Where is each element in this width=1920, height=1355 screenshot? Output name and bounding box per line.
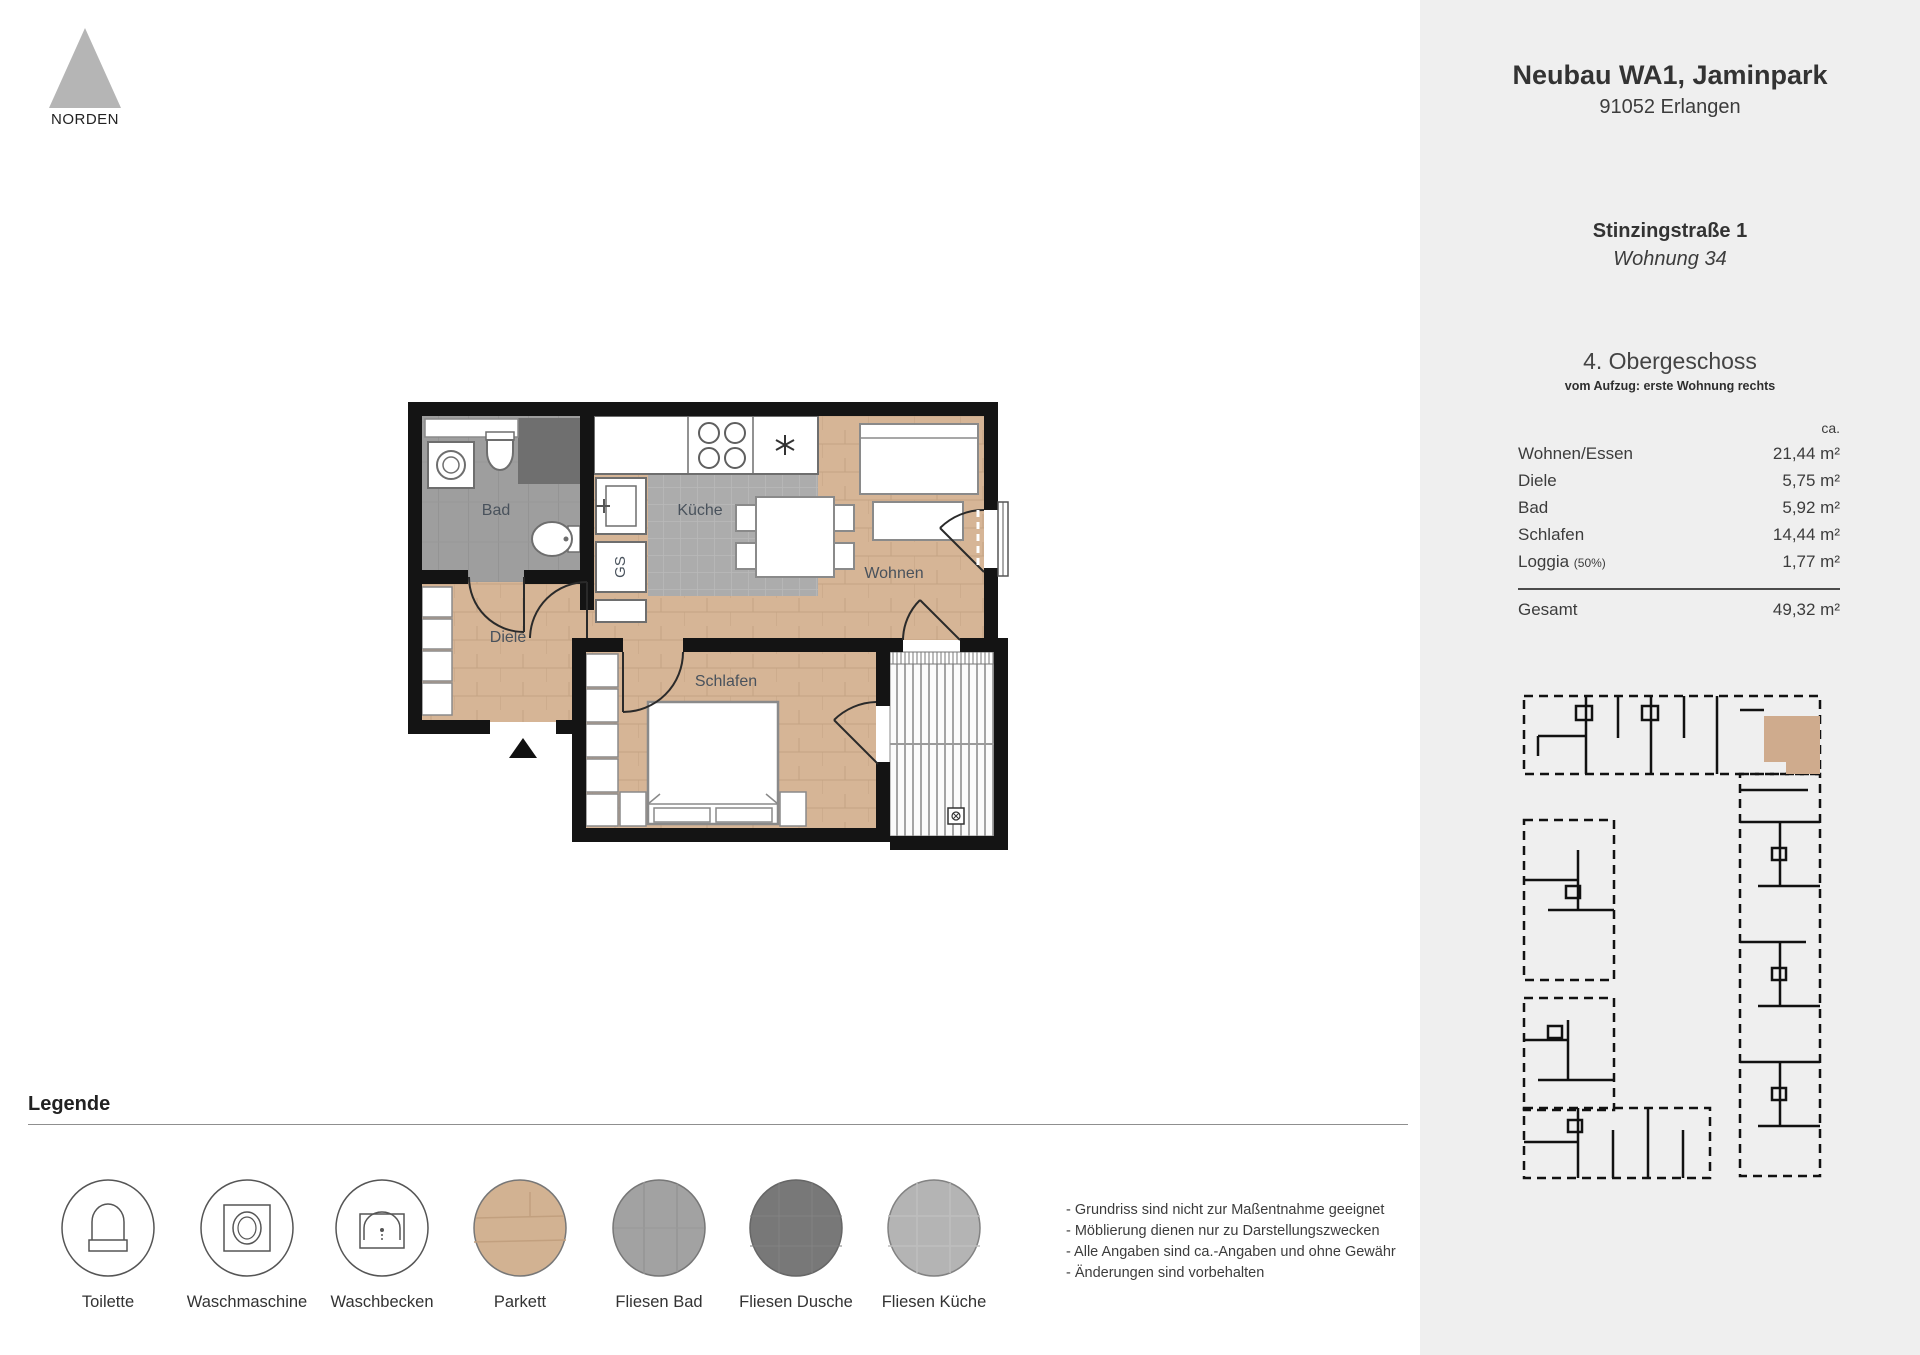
highlighted-apartment xyxy=(1764,716,1820,774)
loggia xyxy=(890,652,994,836)
note-line: - Möblierung dienen nur zu Darstellungsz… xyxy=(1066,1221,1396,1242)
area-label: Schlafen xyxy=(1518,521,1584,548)
floor-note: vom Aufzug: erste Wohnung rechts xyxy=(1420,379,1920,393)
washbasin-icon xyxy=(532,522,580,556)
room-label-wohnen: Wohnen xyxy=(864,565,923,582)
disclaimer-notes: - Grundriss sind nicht zur Maßentnahme g… xyxy=(1066,1200,1396,1284)
note-line: - Alle Angaben sind ca.-Angaben und ohne… xyxy=(1066,1242,1396,1263)
project-street: Stinzingstraße 1 xyxy=(1420,220,1920,243)
area-row: Bad 5,92 m² xyxy=(1518,494,1840,521)
area-table: ca. Wohnen/Essen 21,44 m² Diele 5,75 m² … xyxy=(1518,420,1840,577)
area-value: 1,77 m² xyxy=(1782,548,1840,577)
tiles-bath-swatch xyxy=(609,1178,709,1278)
entrance-marker-icon xyxy=(509,738,537,758)
note-line: - Änderungen sind vorbehalten xyxy=(1066,1263,1396,1284)
apartment-floorplan: Bad GS xyxy=(408,402,1013,857)
sofa xyxy=(860,424,978,494)
washing-machine-icon xyxy=(428,442,474,488)
legend-item-parkett: Parkett xyxy=(445,1178,595,1312)
legend-item-toilette: Toilette xyxy=(33,1178,183,1312)
legend-label: Parkett xyxy=(445,1293,595,1312)
chair xyxy=(736,543,756,569)
dining-table xyxy=(756,497,834,577)
legend-label: Fliesen Bad xyxy=(584,1293,734,1312)
tiles-kitchen-swatch xyxy=(884,1178,984,1278)
dishwasher-icon: GS xyxy=(596,542,646,592)
area-label: Loggia (50%) xyxy=(1518,548,1606,577)
area-total-label: Gesamt xyxy=(1518,596,1578,623)
area-value: 5,75 m² xyxy=(1782,467,1840,494)
area-label: Wohnen/Essen xyxy=(1518,440,1633,467)
nightstand xyxy=(620,792,646,826)
kitchen-sink-icon xyxy=(596,478,646,534)
area-value: 5,92 m² xyxy=(1782,494,1840,521)
washing-machine-icon xyxy=(197,1178,297,1278)
floorplan-sheet: NORDEN xyxy=(0,0,1920,1355)
area-label-suffix: (50%) xyxy=(1574,556,1606,570)
area-total-row: Gesamt 49,32 m² xyxy=(1518,596,1840,623)
room-label-bad: Bad xyxy=(482,502,510,519)
hall-wardrobe xyxy=(422,587,452,715)
area-ca-label: ca. xyxy=(1518,420,1840,440)
legend-item-fliesen-bad: Fliesen Bad xyxy=(584,1178,734,1312)
legend-item-waschmaschine: Waschmaschine xyxy=(172,1178,322,1312)
area-value: 21,44 m² xyxy=(1773,440,1840,467)
chair xyxy=(834,505,854,531)
toilet-icon xyxy=(486,432,514,470)
legend-item-waschbecken: Waschbecken xyxy=(307,1178,457,1312)
drain-icon xyxy=(948,808,964,824)
legend-divider xyxy=(28,1124,1408,1125)
toilet-icon xyxy=(58,1178,158,1278)
building-left-mid xyxy=(1524,820,1614,980)
floor-title: 4. Obergeschoss xyxy=(1420,348,1920,375)
bathroom: Bad xyxy=(422,416,580,582)
area-total-divider xyxy=(1518,588,1840,590)
building-inner-walls xyxy=(1524,696,1820,1178)
north-arrow: NORDEN xyxy=(30,28,140,128)
room-label-kueche: Küche xyxy=(677,502,722,519)
nightstand xyxy=(780,792,806,826)
dishwasher-label: GS xyxy=(612,556,629,578)
legend-label: Waschbecken xyxy=(307,1293,457,1312)
area-value: 14,44 m² xyxy=(1773,521,1840,548)
area-label: Bad xyxy=(1518,494,1548,521)
chair xyxy=(736,505,756,531)
project-city: 91052 Erlangen xyxy=(1420,96,1920,119)
legend-label: Toilette xyxy=(33,1293,183,1312)
legend-item-fliesen-kueche: Fliesen Küche xyxy=(859,1178,1009,1312)
counter-end xyxy=(596,600,646,622)
area-total-value: 49,32 m² xyxy=(1773,596,1840,623)
north-arrow-icon xyxy=(49,28,121,108)
area-row: Loggia (50%) 1,77 m² xyxy=(1518,548,1840,577)
legend-item-fliesen-dusche: Fliesen Dusche xyxy=(721,1178,871,1312)
room-label-schlafen: Schlafen xyxy=(695,673,757,690)
parquet-swatch xyxy=(470,1178,570,1278)
shower-tiles xyxy=(518,418,580,484)
bed xyxy=(648,702,778,824)
area-row: Wohnen/Essen 21,44 m² xyxy=(1518,440,1840,467)
tiles-shower-swatch xyxy=(746,1178,846,1278)
legend-label: Waschmaschine xyxy=(172,1293,322,1312)
project-title: Neubau WA1, Jaminpark xyxy=(1420,60,1920,91)
area-label: Diele xyxy=(1518,467,1557,494)
building-overview-plan xyxy=(1518,690,1826,1182)
legend-label: Fliesen Küche xyxy=(859,1293,1009,1312)
area-row: Schlafen 14,44 m² xyxy=(1518,521,1840,548)
project-unit: Wohnung 34 xyxy=(1420,248,1920,271)
note-line: - Grundriss sind nicht zur Maßentnahme g… xyxy=(1066,1200,1396,1221)
sink-icon xyxy=(332,1178,432,1278)
legend-title: Legende xyxy=(28,1093,110,1116)
window-frame xyxy=(998,502,1008,576)
area-row: Diele 5,75 m² xyxy=(1518,467,1840,494)
legend-label: Fliesen Dusche xyxy=(721,1293,871,1312)
north-label: NORDEN xyxy=(30,111,140,128)
chair xyxy=(834,543,854,569)
